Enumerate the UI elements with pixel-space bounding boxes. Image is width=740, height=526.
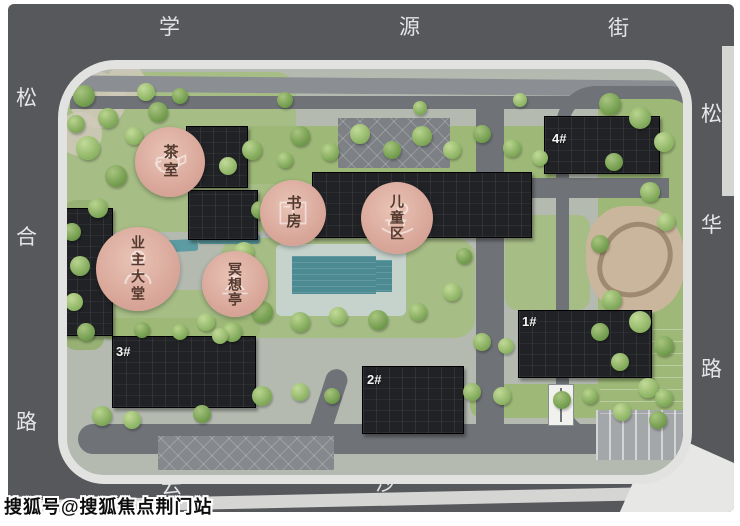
tree <box>290 312 310 332</box>
watermark: 搜狐号@搜狐焦点荆门站 <box>4 493 213 519</box>
tree <box>463 383 481 401</box>
amenity-label: 茶室 <box>163 144 178 180</box>
tree <box>329 307 347 325</box>
tree <box>582 388 598 404</box>
tree <box>649 411 667 429</box>
street-name-left: 路 <box>16 412 37 433</box>
tree <box>73 85 95 107</box>
tree <box>412 126 432 146</box>
tree <box>413 101 427 115</box>
tree <box>443 283 461 301</box>
tree <box>591 235 609 253</box>
amenity-owners-lobby: 业主大堂 <box>96 227 180 311</box>
street-name-top: 源 <box>399 17 420 38</box>
tree <box>76 136 100 160</box>
tree <box>640 182 660 202</box>
tree <box>77 323 95 341</box>
tree <box>148 102 168 122</box>
site-plan: 4# 1# 2# 3# 茶室 书房 <box>58 60 692 484</box>
tree <box>105 165 127 187</box>
tree <box>599 93 621 115</box>
tree <box>654 336 674 356</box>
tree <box>67 115 85 133</box>
tree <box>123 411 141 429</box>
amenity-label: 业主大堂 <box>131 235 145 303</box>
tree <box>134 322 150 338</box>
tree <box>613 403 631 421</box>
tree <box>219 157 237 175</box>
tree <box>629 311 651 333</box>
tree <box>277 92 293 108</box>
tree <box>473 125 491 143</box>
tree <box>324 388 340 404</box>
tree <box>513 93 527 107</box>
tree <box>456 248 472 264</box>
tree <box>493 387 511 405</box>
amenity-label: 书房 <box>286 195 301 231</box>
sidewalk-band-right <box>722 46 734 196</box>
tree <box>443 141 461 159</box>
tree <box>88 198 108 218</box>
tree <box>321 143 339 161</box>
street-frame: 学 源 街 松 合 路 松 华 路 云 沙 街 <box>8 4 734 512</box>
tree <box>368 310 388 330</box>
tree <box>409 303 427 321</box>
tree <box>473 333 491 351</box>
tree <box>591 323 609 341</box>
tree <box>350 124 370 144</box>
street-name-top: 学 <box>159 17 180 38</box>
tree <box>92 406 112 426</box>
street-name-left: 合 <box>16 227 37 248</box>
tree <box>98 108 118 128</box>
street-name-right: 松 <box>701 104 722 125</box>
tree <box>291 383 309 401</box>
street-name-right: 华 <box>701 215 722 236</box>
building-label-2: 2# <box>367 372 381 387</box>
tree <box>657 213 675 231</box>
amenity-tea-room: 茶室 <box>135 127 205 197</box>
amenity-meditation-pavilion: 冥想亭 <box>202 251 268 317</box>
tree <box>532 150 548 166</box>
street-name-top: 街 <box>608 18 629 39</box>
tree <box>277 152 293 168</box>
tree <box>63 223 81 241</box>
tree <box>629 107 651 129</box>
tree <box>197 313 215 331</box>
tree <box>498 338 514 354</box>
tree <box>172 88 188 104</box>
tree <box>290 126 310 146</box>
tree <box>172 324 188 340</box>
plan-layer: 4# 1# 2# 3# 茶室 书房 <box>58 60 692 484</box>
tree <box>242 140 262 160</box>
tree <box>193 405 211 423</box>
amenity-study: 书房 <box>260 180 326 246</box>
tree <box>503 139 521 157</box>
amenity-label: 冥想亭 <box>228 262 242 307</box>
tree <box>605 153 623 171</box>
building-label-4: 4# <box>552 131 566 146</box>
tree <box>602 290 622 310</box>
street-name-left: 松 <box>16 88 37 109</box>
tree <box>212 328 228 344</box>
tree <box>383 141 401 159</box>
tree <box>65 293 83 311</box>
amenity-label: 儿童区 <box>390 194 404 242</box>
amenity-kids-zone: 儿童区 <box>361 182 433 254</box>
tree <box>252 386 272 406</box>
tree <box>611 353 629 371</box>
tree <box>70 256 90 276</box>
street-name-right: 路 <box>701 359 722 380</box>
tree <box>655 389 673 407</box>
building-label-3: 3# <box>116 344 130 359</box>
tree <box>654 132 674 152</box>
building-label-1: 1# <box>522 314 536 329</box>
tree <box>553 391 571 409</box>
tree <box>137 83 155 101</box>
